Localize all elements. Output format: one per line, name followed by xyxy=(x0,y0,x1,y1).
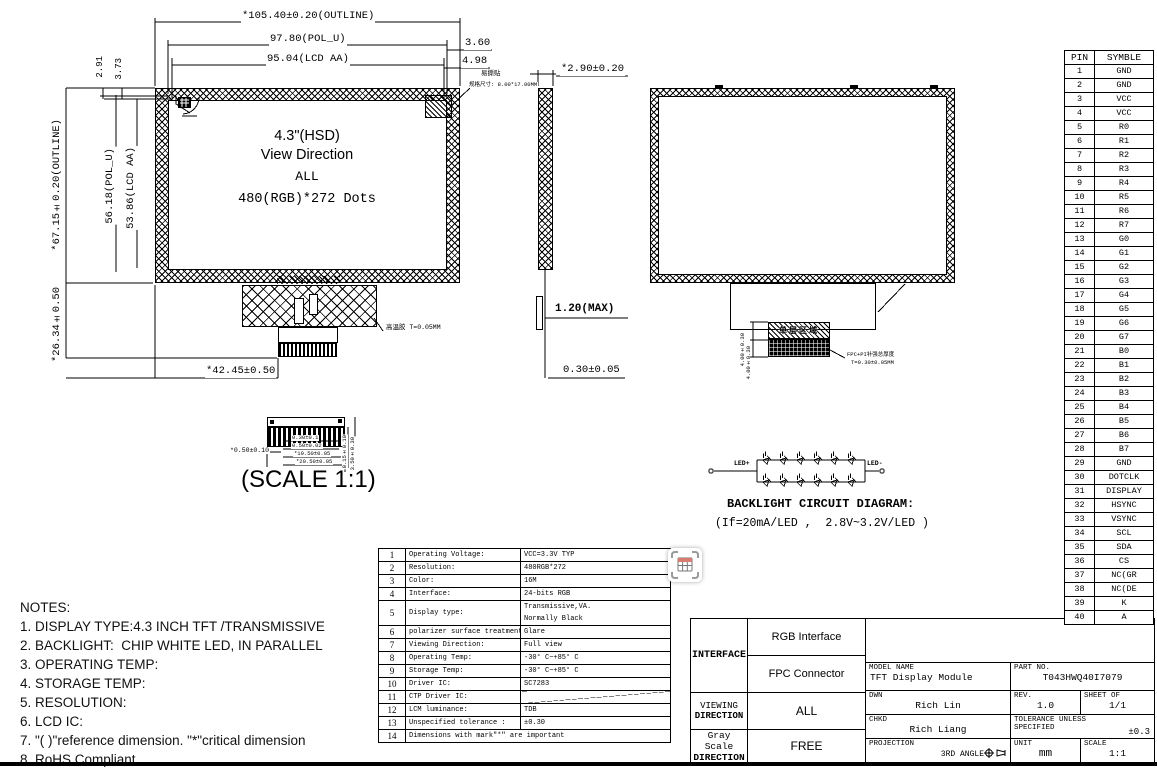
rev-cell: REV. 1.0 xyxy=(1010,690,1081,715)
spec-name: Unspecified tolerance : xyxy=(406,717,521,730)
pin-symbol: R4 xyxy=(1095,177,1154,191)
detail-pin-dot-right xyxy=(338,419,342,423)
pin-row: 35SDA xyxy=(1065,541,1154,555)
spec-value: 24-bits RGB xyxy=(521,588,671,601)
part-no-value: T043HWQ40I7079 xyxy=(1011,672,1154,683)
bonding-strip xyxy=(277,276,340,284)
pin-number: 36 xyxy=(1065,555,1095,569)
fpc-connector-fingers xyxy=(278,343,337,357)
pin-row: 39K xyxy=(1065,597,1154,611)
pin-symbol: NC(DE xyxy=(1095,583,1154,597)
third-angle-projection-icon xyxy=(984,747,1008,759)
pin-number: 35 xyxy=(1065,541,1095,555)
pin-number: 21 xyxy=(1065,345,1095,359)
pin-number: 17 xyxy=(1065,289,1095,303)
pin-symbol: R0 xyxy=(1095,121,1154,135)
dim-lcd-height: 53.86(LCD AA) xyxy=(126,146,138,230)
pin-row: 28B7 xyxy=(1065,443,1154,457)
pin-number: 19 xyxy=(1065,317,1095,331)
note-line: 4. STORAGE TEMP: xyxy=(20,674,325,693)
table-capture-button[interactable] xyxy=(668,548,702,582)
pin-symbol: B1 xyxy=(1095,359,1154,373)
spec-value xyxy=(521,691,671,704)
pin-number: 24 xyxy=(1065,387,1095,401)
pin-row: 5R0 xyxy=(1065,121,1154,135)
led-symbol xyxy=(811,474,824,487)
spec-name: Resolution: xyxy=(406,562,521,575)
scale-label: SCALE xyxy=(1081,739,1154,748)
pin-number: 5 xyxy=(1065,121,1095,135)
fpc-neck xyxy=(278,327,338,343)
spec-value: -30° C~+85° C xyxy=(521,665,671,678)
unit-value: mm xyxy=(1011,748,1080,760)
pin-number: 2 xyxy=(1065,79,1095,93)
spec-name: Dimensions with mark"*" are important xyxy=(406,730,671,743)
single-layer-strip: 单层区域 xyxy=(768,322,830,339)
note-line: 6. LCD IC: xyxy=(20,712,325,731)
pin-row: 23B2 xyxy=(1065,373,1154,387)
detail-dim-6: 0.15±0.10 xyxy=(342,434,348,469)
scale-1-1-label: (SCALE 1:1) xyxy=(241,466,376,494)
dim-lcd-width: 95.04(LCD AA) xyxy=(266,54,350,66)
back-view-tab-1 xyxy=(715,85,723,89)
spec-name: Storage Temp: xyxy=(406,665,521,678)
spec-row: 9Storage Temp:-30° C~+85° C xyxy=(379,665,671,678)
spec-value: SC7283 xyxy=(521,678,671,691)
model-name-value: TFT Display Module xyxy=(866,672,1010,683)
dim-26-34: *26.34±0.50 xyxy=(52,286,64,363)
pin-row: 1GND xyxy=(1065,65,1154,79)
spec-no: 7 xyxy=(379,639,406,652)
led-symbol xyxy=(760,452,773,465)
pin-row: 24B3 xyxy=(1065,387,1154,401)
pin-row: 11R6 xyxy=(1065,205,1154,219)
dwn-cell: DWN Rich Lin xyxy=(865,690,1011,715)
gray-value-cell: FREE xyxy=(747,729,866,763)
detail-connector-top xyxy=(267,417,345,427)
view-direction-text: View Direction xyxy=(227,147,387,163)
gray-direction-label: DIRECTION xyxy=(693,752,744,763)
led-plus-label: LED+ xyxy=(733,460,751,467)
led-symbol xyxy=(845,452,858,465)
pin-number: 40 xyxy=(1065,611,1095,625)
pin-symbol: G0 xyxy=(1095,233,1154,247)
spec-row: 7Viewing Direction:Full view xyxy=(379,639,671,652)
pin-row: 33VSYNC xyxy=(1065,513,1154,527)
pin-symbol: G7 xyxy=(1095,331,1154,345)
unit-label: UNIT xyxy=(1011,739,1080,748)
pin-row: 25B4 xyxy=(1065,401,1154,415)
pin-row: 34SCL xyxy=(1065,527,1154,541)
dim-2-90: *2.90±0.20 xyxy=(560,64,625,76)
model-name-cell: MODEL NAME TFT Display Module xyxy=(865,662,1011,691)
pin-number: 34 xyxy=(1065,527,1095,541)
projection-value: 3RD ANGLE xyxy=(941,750,984,759)
pin-row: 17G4 xyxy=(1065,289,1154,303)
pin-symbol: A xyxy=(1095,611,1154,625)
pin-number: 14 xyxy=(1065,247,1095,261)
sheet-label: SHEET OF xyxy=(1081,691,1154,700)
pin-symbol: B6 xyxy=(1095,429,1154,443)
side-view-fpc-fold xyxy=(536,296,543,330)
display-size-text: 4.3"(HSD) xyxy=(227,128,387,144)
spec-name: Display type: xyxy=(406,601,521,626)
sheet-value: 1/1 xyxy=(1081,700,1154,711)
pin-row: 22B1 xyxy=(1065,359,1154,373)
spec-name: polarizer surface treatment: xyxy=(406,626,521,639)
tolerance-cell: TOLERANCE UNLESS SPECIFIED ±0.3 xyxy=(1010,714,1155,739)
pin-symbol: G1 xyxy=(1095,247,1154,261)
spec-table-body: 1Operating Voltage:VCC=3.3V TYP2Resoluti… xyxy=(379,549,671,743)
backlight-title: BACKLIGHT CIRCUIT DIAGRAM: xyxy=(727,497,914,511)
pin-row: 38NC(DE xyxy=(1065,583,1154,597)
pin-row: 4VCC xyxy=(1065,107,1154,121)
spec-value: -30° C~+85° C xyxy=(521,652,671,665)
spec-no: 10 xyxy=(379,678,406,691)
pin-number: 25 xyxy=(1065,401,1095,415)
viewing-value-cell: ALL xyxy=(747,692,866,730)
led-symbol xyxy=(845,474,858,487)
pin-table: PIN SYMBLE 1GND2GND3VCC4VCC5R06R17R28R39… xyxy=(1064,50,1154,625)
chkd-cell: CHKD Rich Liang xyxy=(865,714,1011,739)
pin-symbol: NC(GR xyxy=(1095,569,1154,583)
pin-number: 9 xyxy=(1065,177,1095,191)
pin-symbol: GND xyxy=(1095,457,1154,471)
spec-no: 2 xyxy=(379,562,406,575)
viewing-direction-label: DIRECTION xyxy=(695,711,744,721)
back-view-inner xyxy=(658,96,947,275)
spec-value: Full view xyxy=(521,639,671,652)
pin-symbol: G5 xyxy=(1095,303,1154,317)
pin-number: 39 xyxy=(1065,597,1095,611)
pin-symbol: G6 xyxy=(1095,317,1154,331)
pin-col-header: PIN xyxy=(1065,51,1095,65)
pin-symbol: SDA xyxy=(1095,541,1154,555)
spec-row: 1Operating Voltage:VCC=3.3V TYP xyxy=(379,549,671,562)
pin-symbol: K xyxy=(1095,597,1154,611)
pin-row: 7R2 xyxy=(1065,149,1154,163)
pin-number: 18 xyxy=(1065,303,1095,317)
led-symbol xyxy=(777,452,790,465)
projection-cell: PROJECTION 3RD ANGLE xyxy=(865,738,1011,763)
scale-value: 1:1 xyxy=(1081,748,1154,759)
pin-number: 8 xyxy=(1065,163,1095,177)
pin-row: 20G7 xyxy=(1065,331,1154,345)
pin-symbol: GND xyxy=(1095,79,1154,93)
pin-symbol: R7 xyxy=(1095,219,1154,233)
spec-row: 8Operating Temp:-30° C~+85° C xyxy=(379,652,671,665)
spec-row: 14Dimensions with mark"*" are important xyxy=(379,730,671,743)
led-symbol xyxy=(794,474,807,487)
resolution-text: 480(RGB)*272 Dots xyxy=(227,192,387,207)
spec-row: 5Display type:Transmissive,VA.Normally B… xyxy=(379,601,671,626)
note-line: 2. BACKLIGHT: CHIP WHITE LED, IN PARALLE… xyxy=(20,636,325,655)
pin-symbol: B7 xyxy=(1095,443,1154,457)
chkd-value: Rich Liang xyxy=(866,724,1010,735)
sticker-name-label: 易撕贴 xyxy=(480,70,502,77)
back-view-tab-3 xyxy=(930,85,938,89)
pin-number: 32 xyxy=(1065,499,1095,513)
pin-row: 29GND xyxy=(1065,457,1154,471)
pin-row: 13G0 xyxy=(1065,233,1154,247)
dim-0-30: 0.30±0.05 xyxy=(562,365,621,377)
gray-scale-cell: Gray Scale DIRECTION xyxy=(690,729,748,763)
pin-number: 10 xyxy=(1065,191,1095,205)
unit-cell: UNIT mm xyxy=(1010,738,1081,763)
view-direction-value: ALL xyxy=(227,169,387,184)
fpc-connector-label: FPC Connector xyxy=(769,668,845,680)
spec-row: 6polarizer surface treatment:Glare xyxy=(379,626,671,639)
dim-1-20-max: 1.20(MAX) xyxy=(554,303,615,315)
pin-row: 21B0 xyxy=(1065,345,1154,359)
pin-number: 30 xyxy=(1065,471,1095,485)
pin-row: 14G1 xyxy=(1065,247,1154,261)
spec-value: VCC=3.3V TYP xyxy=(521,549,671,562)
dim-outline-height: *67.15±0.20(OUTLINE) xyxy=(52,118,64,252)
dim-4-98: 4.98 xyxy=(461,56,488,68)
interface-header-cell: INTERFACE xyxy=(690,618,748,693)
pin-symbol: DISPLAY xyxy=(1095,485,1154,499)
pin-number: 7 xyxy=(1065,149,1095,163)
pin-row: 37NC(GR xyxy=(1065,569,1154,583)
detail-pin-dot-left xyxy=(270,420,274,424)
pin-number: 38 xyxy=(1065,583,1095,597)
rgb-interface-label: RGB Interface xyxy=(772,631,842,643)
pin-row: 3VCC xyxy=(1065,93,1154,107)
spec-name: LCM luminance: xyxy=(406,704,521,717)
pin-row: 27B6 xyxy=(1065,429,1154,443)
pin-symbol: R5 xyxy=(1095,191,1154,205)
viewing-value: ALL xyxy=(796,704,817,718)
spec-row: 2Resolution:480RGB*272 xyxy=(379,562,671,575)
spec-value: Glare xyxy=(521,626,671,639)
note-line: 8. RoHS Compliant xyxy=(20,750,325,769)
dim-pol-height: 56.18(POL_U) xyxy=(105,147,117,225)
pin-row: 18G5 xyxy=(1065,303,1154,317)
gray-scale-label: Gray Scale xyxy=(691,730,747,752)
spec-row: 10Driver IC:SC7283 xyxy=(379,678,671,691)
note-line: 7. "( )"reference dimension. "*"critical… xyxy=(20,731,325,750)
pin-symbol: G2 xyxy=(1095,261,1154,275)
pin-table-body: 1GND2GND3VCC4VCC5R06R17R28R39R410R511R61… xyxy=(1065,65,1154,625)
pin-symbol: VSYNC xyxy=(1095,513,1154,527)
pin-symbol: DOTCLK xyxy=(1095,471,1154,485)
led-symbol xyxy=(828,452,841,465)
spec-value: ±0.30 xyxy=(521,717,671,730)
fpc-note-line2: T=0.30±0.05MM xyxy=(850,360,895,366)
symbol-col-header: SYMBLE xyxy=(1095,51,1154,65)
pin-row: 6R1 xyxy=(1065,135,1154,149)
spec-name: Operating Voltage: xyxy=(406,549,521,562)
spec-no: 9 xyxy=(379,665,406,678)
fpc-component-2 xyxy=(309,294,318,315)
spec-name: Driver IC: xyxy=(406,678,521,691)
pin-number: 28 xyxy=(1065,443,1095,457)
pin-row: 30DOTCLK xyxy=(1065,471,1154,485)
spec-name: CTP Driver IC: xyxy=(406,691,521,704)
pin-number: 13 xyxy=(1065,233,1095,247)
gray-value: FREE xyxy=(790,739,822,753)
pin-symbol: G3 xyxy=(1095,275,1154,289)
pin-number: 31 xyxy=(1065,485,1095,499)
pin-number: 1 xyxy=(1065,65,1095,79)
detail-dim-3: 0.50±0.02 xyxy=(291,443,323,449)
spec-name: Operating Temp: xyxy=(406,652,521,665)
pin-symbol: B2 xyxy=(1095,373,1154,387)
pin-number: 22 xyxy=(1065,359,1095,373)
pin-number: 11 xyxy=(1065,205,1095,219)
pin-number: 33 xyxy=(1065,513,1095,527)
pin-symbol: B3 xyxy=(1095,387,1154,401)
pin-row: 8R3 xyxy=(1065,163,1154,177)
pin-symbol: R2 xyxy=(1095,149,1154,163)
pin-number: 27 xyxy=(1065,429,1095,443)
pin-symbol: B5 xyxy=(1095,415,1154,429)
spec-row: 4Interface:24-bits RGB xyxy=(379,588,671,601)
pin-row: 16G3 xyxy=(1065,275,1154,289)
spec-row: 11CTP Driver IC: xyxy=(379,691,671,704)
tolerance-label-1: TOLERANCE UNLESS xyxy=(1011,715,1154,724)
model-name-label: MODEL NAME xyxy=(866,663,1010,672)
spec-row: 13Unspecified tolerance :±0.30 xyxy=(379,717,671,730)
fpc-note-line1: FPC+PI补强总厚度 xyxy=(846,352,895,358)
backlight-subtitle: (If=20mA/LED , 2.8V~3.2V/LED ) xyxy=(715,517,929,530)
sheet-cell: SHEET OF 1/1 xyxy=(1080,690,1155,715)
pin-row: 36CS xyxy=(1065,555,1154,569)
notes: NOTES:1. DISPLAY TYPE:4.3 INCH TFT /TRAN… xyxy=(20,598,325,769)
pin-symbol: VCC xyxy=(1095,93,1154,107)
spec-no: 11 xyxy=(379,691,406,704)
dim-outline-width: *105.40±0.20(OUTLINE) xyxy=(241,11,375,23)
pin-number: 6 xyxy=(1065,135,1095,149)
display-spec-text: 4.3"(HSD) View Direction ALL 480(RGB)*27… xyxy=(227,128,387,207)
spec-name: Viewing Direction: xyxy=(406,639,521,652)
dim-pol-width: 97.80(POL_U) xyxy=(269,34,347,46)
scale-cell: SCALE 1:1 xyxy=(1080,738,1155,763)
spec-no: 14 xyxy=(379,730,406,743)
backlight-led-array xyxy=(760,452,858,487)
rev-label: REV. xyxy=(1011,691,1080,700)
pin-row: 26B5 xyxy=(1065,415,1154,429)
side-view-body xyxy=(538,88,553,270)
spec-value: TDB xyxy=(521,704,671,717)
led-symbol xyxy=(777,474,790,487)
pin-symbol: HSYNC xyxy=(1095,499,1154,513)
led-minus-label: LED- xyxy=(866,460,884,467)
spec-no: 13 xyxy=(379,717,406,730)
spec-no: 3 xyxy=(379,575,406,588)
detail-dim-2: 0.30±0.1 xyxy=(291,435,319,441)
led-symbol xyxy=(811,452,824,465)
pin-number: 29 xyxy=(1065,457,1095,471)
spec-name: Interface: xyxy=(406,588,521,601)
tolerance-value: ±0.3 xyxy=(1128,727,1150,737)
spec-no: 5 xyxy=(379,601,406,626)
pin-row: 32HSYNC xyxy=(1065,499,1154,513)
pin-symbol: VCC xyxy=(1095,107,1154,121)
pin-row: 15G2 xyxy=(1065,261,1154,275)
spec-row: 12LCM luminance:TDB xyxy=(379,704,671,717)
note-line: 1. DISPLAY TYPE:4.3 INCH TFT /TRANSMISSI… xyxy=(20,617,325,636)
dwn-label: DWN xyxy=(866,691,1010,700)
dim-2-91: 2.91 xyxy=(96,55,106,79)
spec-no: 12 xyxy=(379,704,406,717)
interface-label: INTERFACE xyxy=(692,650,746,661)
tear-sticker-patch xyxy=(425,95,452,118)
note-line: NOTES: xyxy=(20,598,325,617)
viewing-label: VIEWING xyxy=(700,701,738,711)
pin-number: 26 xyxy=(1065,415,1095,429)
interface-row1-cell: RGB Interface xyxy=(747,618,866,656)
pin-symbol: R3 xyxy=(1095,163,1154,177)
pin-row: 31DISPLAY xyxy=(1065,485,1154,499)
pin-symbol: SCL xyxy=(1095,527,1154,541)
pin-row: 2GND xyxy=(1065,79,1154,93)
dwn-value: Rich Lin xyxy=(866,700,1010,711)
spec-value: 16M xyxy=(521,575,671,588)
pin-number: 15 xyxy=(1065,261,1095,275)
spec-table: 1Operating Voltage:VCC=3.3V TYP2Resoluti… xyxy=(378,548,671,743)
back-dim-b: 4.00±0.30 xyxy=(746,345,752,380)
dim-3-73: 3.73 xyxy=(115,57,125,81)
pin-row: 40A xyxy=(1065,611,1154,625)
spec-no: 1 xyxy=(379,549,406,562)
pin-row: 9R4 xyxy=(1065,177,1154,191)
pin-symbol: G4 xyxy=(1095,289,1154,303)
spec-name: Color: xyxy=(406,575,521,588)
part-no-label: PART NO. xyxy=(1011,663,1154,672)
pin-symbol: GND xyxy=(1095,65,1154,79)
rev-value: 1.0 xyxy=(1011,700,1080,711)
spec-value: Transmissive,VA.Normally Black xyxy=(521,601,671,626)
chkd-label: CHKD xyxy=(866,715,1010,724)
led-symbol xyxy=(828,474,841,487)
pin-number: 20 xyxy=(1065,331,1095,345)
spec-value: 480RGB*272 xyxy=(521,562,671,575)
pin-number: 3 xyxy=(1065,93,1095,107)
dim-42-45: *42.45±0.50 xyxy=(205,366,276,378)
pin-row: 10R5 xyxy=(1065,191,1154,205)
pin-number: 4 xyxy=(1065,107,1095,121)
pin-row: 19G6 xyxy=(1065,317,1154,331)
pin-symbol: B0 xyxy=(1095,345,1154,359)
detail-dim-1: *0.50±0.10 xyxy=(229,447,270,454)
single-layer-label: 单层区域 xyxy=(779,325,819,336)
pin-symbol: R6 xyxy=(1095,205,1154,219)
interface-row2-cell: FPC Connector xyxy=(747,655,866,693)
detail-dim-5: *20.50±0.05 xyxy=(295,459,333,465)
dim-3-60: 3.60 xyxy=(464,38,491,50)
spec-no: 8 xyxy=(379,652,406,665)
back-connector-grid xyxy=(768,339,830,357)
pin-number: 12 xyxy=(1065,219,1095,233)
sticker-size-label: 规格尺寸: 8.00*17.00MM xyxy=(468,82,538,88)
led-symbol xyxy=(760,474,773,487)
pin-row: 12R7 xyxy=(1065,219,1154,233)
fpc-component-1 xyxy=(294,298,304,324)
pin-number: 37 xyxy=(1065,569,1095,583)
table-capture-icon xyxy=(668,548,702,582)
note-line: 3. OPERATING TEMP: xyxy=(20,655,325,674)
led-symbol xyxy=(794,452,807,465)
pin-symbol: CS xyxy=(1095,555,1154,569)
spec-no: 4 xyxy=(379,588,406,601)
back-view-tab-2 xyxy=(850,85,858,89)
spec-no: 6 xyxy=(379,626,406,639)
pin-symbol: R1 xyxy=(1095,135,1154,149)
viewing-direction-cell: VIEWING DIRECTION xyxy=(690,692,748,730)
pin-table-header: PIN SYMBLE xyxy=(1065,51,1154,65)
